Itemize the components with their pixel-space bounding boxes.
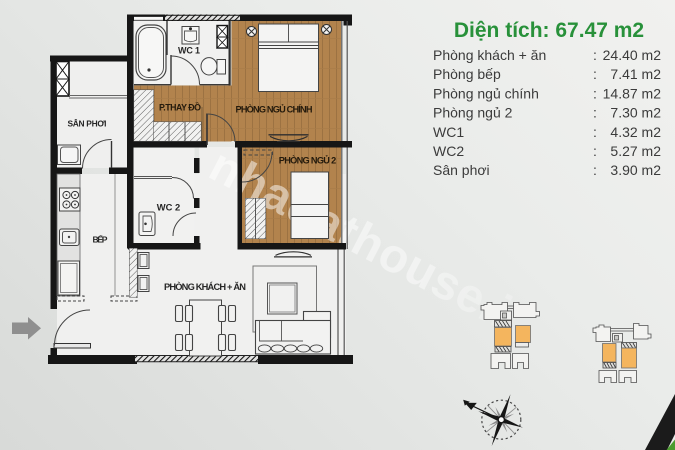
svg-text::: : — [593, 85, 597, 101]
svg-text:BẾP: BẾP — [93, 235, 108, 245]
svg-text::: : — [593, 105, 597, 121]
svg-text:Sân phơi: Sân phơi — [433, 162, 490, 178]
svg-text:24.40 m2: 24.40 m2 — [603, 47, 662, 63]
svg-text::: : — [593, 143, 597, 159]
svg-text:Phòng bếp: Phòng bếp — [433, 66, 501, 82]
svg-text:7.41 m2: 7.41 m2 — [610, 66, 661, 82]
svg-text:WC 2: WC 2 — [157, 202, 181, 213]
svg-text::: : — [593, 47, 597, 63]
svg-text:P.THAY ĐỒ: P.THAY ĐỒ — [159, 102, 201, 113]
svg-text:PHÒNG NGỦ CHÍNH: PHÒNG NGỦ CHÍNH — [236, 104, 313, 115]
svg-text:SÂN PHƠI: SÂN PHƠI — [68, 118, 107, 129]
svg-text:Diện tích: 67.47 m2: Diện tích: 67.47 m2 — [454, 19, 644, 42]
svg-text:PHÒNG NGỦ 2: PHÒNG NGỦ 2 — [279, 155, 337, 166]
svg-text::: : — [593, 162, 597, 178]
svg-text:5.27 m2: 5.27 m2 — [610, 143, 661, 159]
svg-text:Phòng ngủ 2: Phòng ngủ 2 — [433, 105, 513, 121]
svg-text:3.90 m2: 3.90 m2 — [610, 162, 661, 178]
svg-text:WC1: WC1 — [433, 124, 464, 140]
svg-text:PHÒNG KHÁCH + ĂN: PHÒNG KHÁCH + ĂN — [164, 281, 246, 292]
svg-text:WC2: WC2 — [433, 143, 464, 159]
svg-text:WC 1: WC 1 — [178, 46, 200, 56]
svg-text:4.32 m2: 4.32 m2 — [610, 124, 661, 140]
svg-text:Phòng khách + ăn: Phòng khách + ăn — [433, 47, 546, 63]
svg-text:Phòng ngủ chính: Phòng ngủ chính — [433, 85, 539, 101]
svg-text:14.87 m2: 14.87 m2 — [603, 85, 662, 101]
svg-text::: : — [593, 66, 597, 82]
svg-text:7.30 m2: 7.30 m2 — [610, 105, 661, 121]
svg-text::: : — [593, 124, 597, 140]
